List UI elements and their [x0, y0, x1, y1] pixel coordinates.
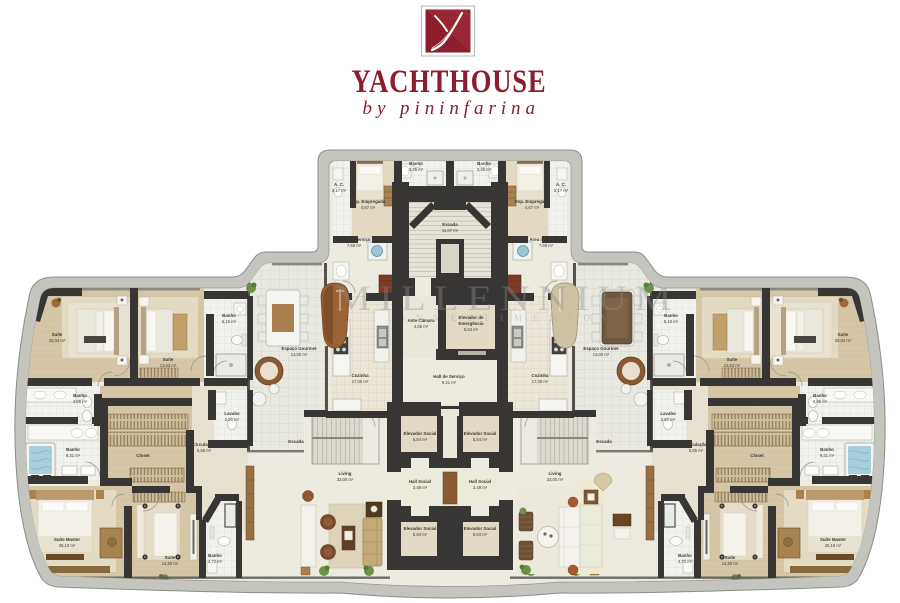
svg-text:Elevador Social: Elevador Social [464, 431, 497, 436]
svg-text:Banho: Banho [208, 553, 222, 558]
svg-text:Hall Social: Hall Social [469, 479, 491, 484]
svg-text:4,67 m²: 4,67 m² [361, 205, 376, 210]
svg-text:Banho: Banho [813, 393, 827, 398]
svg-text:5,10 m²: 5,10 m² [664, 319, 679, 324]
svg-text:Dep. Empregada: Dep. Empregada [351, 199, 386, 204]
svg-text:Living: Living [549, 471, 562, 476]
svg-text:Banho: Banho [73, 393, 87, 398]
svg-text:Ante Câmara: Ante Câmara [407, 318, 435, 323]
svg-text:Banho: Banho [409, 161, 423, 166]
svg-text:Área de Serviço: Área de Serviço [529, 237, 563, 242]
svg-text:A. C.: A. C. [556, 182, 566, 187]
svg-text:A. C.: A. C. [334, 182, 344, 187]
svg-text:Elevador Social: Elevador Social [404, 431, 437, 436]
svg-text:13,63 m²: 13,63 m² [724, 363, 741, 368]
svg-text:Suíte: Suíte [52, 332, 63, 337]
svg-text:Cozinha: Cozinha [531, 373, 549, 378]
svg-text:14,50 m²: 14,50 m² [162, 561, 179, 566]
svg-text:2,45 m²: 2,45 m² [477, 167, 492, 172]
svg-text:33,00 m²: 33,00 m² [547, 477, 564, 482]
svg-text:3,17 m²: 3,17 m² [554, 188, 569, 193]
svg-text:Suíte: Suíte [727, 357, 738, 362]
svg-text:17,00 m²: 17,00 m² [532, 379, 549, 384]
svg-text:5,84 m²: 5,84 m² [473, 437, 488, 442]
svg-text:2,51 m²: 2,51 m² [225, 417, 240, 422]
svg-text:Closet: Closet [750, 453, 764, 458]
svg-text:14,50 m²: 14,50 m² [722, 561, 739, 566]
svg-text:Hall de Serviço: Hall de Serviço [433, 374, 465, 379]
svg-text:Espaço Gourmet: Espaço Gourmet [583, 346, 619, 351]
svg-text:Elevador de: Elevador de [459, 315, 484, 320]
svg-text:3,49 m²: 3,49 m² [473, 485, 488, 490]
svg-text:9,21 m²: 9,21 m² [442, 380, 457, 385]
svg-text:25,04 m²: 25,04 m² [49, 338, 66, 343]
svg-text:Área de Serviço: Área de Serviço [337, 237, 371, 242]
svg-text:9,31 m²: 9,31 m² [820, 453, 835, 458]
svg-text:Elevador Social: Elevador Social [404, 526, 437, 531]
svg-text:Cozinha: Cozinha [351, 373, 369, 378]
svg-text:4,67 m²: 4,67 m² [525, 205, 540, 210]
svg-text:Hall Social: Hall Social [409, 479, 431, 484]
svg-text:4,65 m²: 4,65 m² [414, 324, 429, 329]
svg-text:Elevador Social: Elevador Social [464, 526, 497, 531]
svg-text:3,49 m²: 3,49 m² [413, 485, 428, 490]
svg-text:Closet: Closet [136, 453, 150, 458]
svg-text:Lavabo: Lavabo [660, 411, 676, 416]
svg-text:33,00 m²: 33,00 m² [337, 477, 354, 482]
svg-text:26,10 m²: 26,10 m² [825, 543, 842, 548]
svg-text:Circulação: Circulação [685, 442, 708, 447]
svg-text:Dep. Empregada: Dep. Empregada [515, 199, 550, 204]
svg-text:Closet: Closet [138, 399, 152, 404]
svg-text:Banho: Banho [678, 553, 692, 558]
svg-text:Circulação: Circulação [193, 442, 216, 447]
svg-text:4,72 m²: 4,72 m² [678, 559, 693, 564]
svg-text:7,68 m²: 7,68 m² [539, 243, 554, 248]
svg-text:Suíte: Suíte [165, 555, 176, 560]
svg-text:25,04 m²: 25,04 m² [835, 338, 852, 343]
svg-text:13,63 m²: 13,63 m² [160, 363, 177, 368]
svg-text:5,65 m²: 5,65 m² [197, 448, 212, 453]
svg-text:13,00 m²: 13,00 m² [291, 352, 308, 357]
svg-text:Emergência: Emergência [459, 321, 484, 326]
svg-text:Banho: Banho [222, 313, 236, 318]
svg-text:5,10 m²: 5,10 m² [222, 319, 237, 324]
svg-text:Espaço Gourmet: Espaço Gourmet [281, 346, 317, 351]
svg-text:Living: Living [339, 471, 352, 476]
svg-text:13,00 m²: 13,00 m² [593, 352, 610, 357]
svg-text:Banho: Banho [66, 447, 80, 452]
svg-text:11,07 m²: 11,07 m² [442, 228, 459, 233]
svg-text:Suíte Master: Suíte Master [54, 537, 80, 542]
svg-text:YACHTHOUSE: YACHTHOUSE [352, 64, 547, 100]
svg-text:5,65 m²: 5,65 m² [689, 448, 704, 453]
svg-text:Suíte Master: Suíte Master [820, 537, 846, 542]
svg-text:5,84 m²: 5,84 m² [473, 532, 488, 537]
svg-text:26,10 m²: 26,10 m² [59, 543, 76, 548]
svg-text:Escada: Escada [442, 222, 458, 227]
svg-text:Suíte: Suíte [163, 357, 174, 362]
svg-text:MILLENNIUM: MILLENNIUM [335, 278, 680, 318]
svg-text:4,86 m²: 4,86 m² [73, 399, 88, 404]
svg-text:Escada: Escada [596, 439, 612, 444]
svg-text:3,17 m²: 3,17 m² [332, 188, 347, 193]
svg-text:9,31 m²: 9,31 m² [66, 453, 81, 458]
svg-text:2,51 m²: 2,51 m² [661, 417, 676, 422]
svg-text:Escada: Escada [288, 439, 304, 444]
svg-text:4,86 m²: 4,86 m² [813, 399, 828, 404]
svg-text:5,84 m²: 5,84 m² [413, 532, 428, 537]
svg-text:7,68 m²: 7,68 m² [347, 243, 362, 248]
svg-text:Suíte: Suíte [725, 555, 736, 560]
svg-text:4,72 m²: 4,72 m² [208, 559, 223, 564]
svg-text:Closet: Closet [748, 399, 762, 404]
svg-text:5,84 m²: 5,84 m² [464, 327, 479, 332]
svg-text:Banho: Banho [820, 447, 834, 452]
svg-text:Banho: Banho [664, 313, 678, 318]
svg-text:5,84 m²: 5,84 m² [413, 437, 428, 442]
svg-text:Lavabo: Lavabo [224, 411, 240, 416]
svg-text:17,00 m²: 17,00 m² [352, 379, 369, 384]
svg-text:Suíte: Suíte [838, 332, 849, 337]
svg-text:Banho: Banho [477, 161, 491, 166]
svg-text:2,45 m²: 2,45 m² [409, 167, 424, 172]
